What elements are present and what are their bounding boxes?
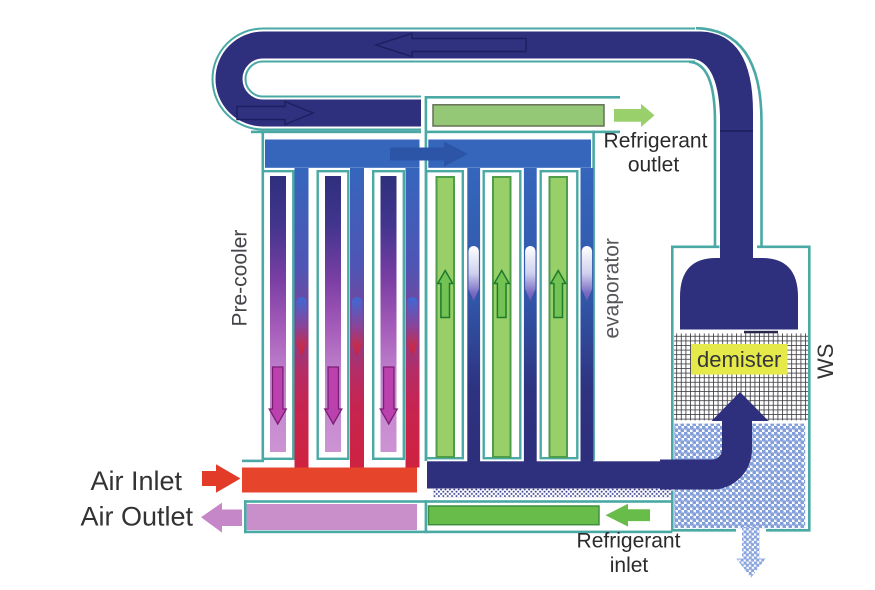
svg-text:Air Inlet: Air Inlet	[90, 466, 182, 496]
svg-text:Pre-cooler: Pre-cooler	[229, 230, 252, 327]
svg-text:Refrigerant: Refrigerant	[604, 130, 708, 153]
svg-text:inlet: inlet	[610, 554, 649, 577]
svg-text:demister: demister	[697, 347, 781, 372]
svg-text:evaporator: evaporator	[601, 238, 624, 338]
svg-text:Refrigerant: Refrigerant	[577, 530, 681, 553]
svg-text:WS: WS	[813, 344, 838, 379]
svg-text:outlet: outlet	[628, 153, 680, 176]
svg-text:Air Outlet: Air Outlet	[80, 502, 193, 532]
